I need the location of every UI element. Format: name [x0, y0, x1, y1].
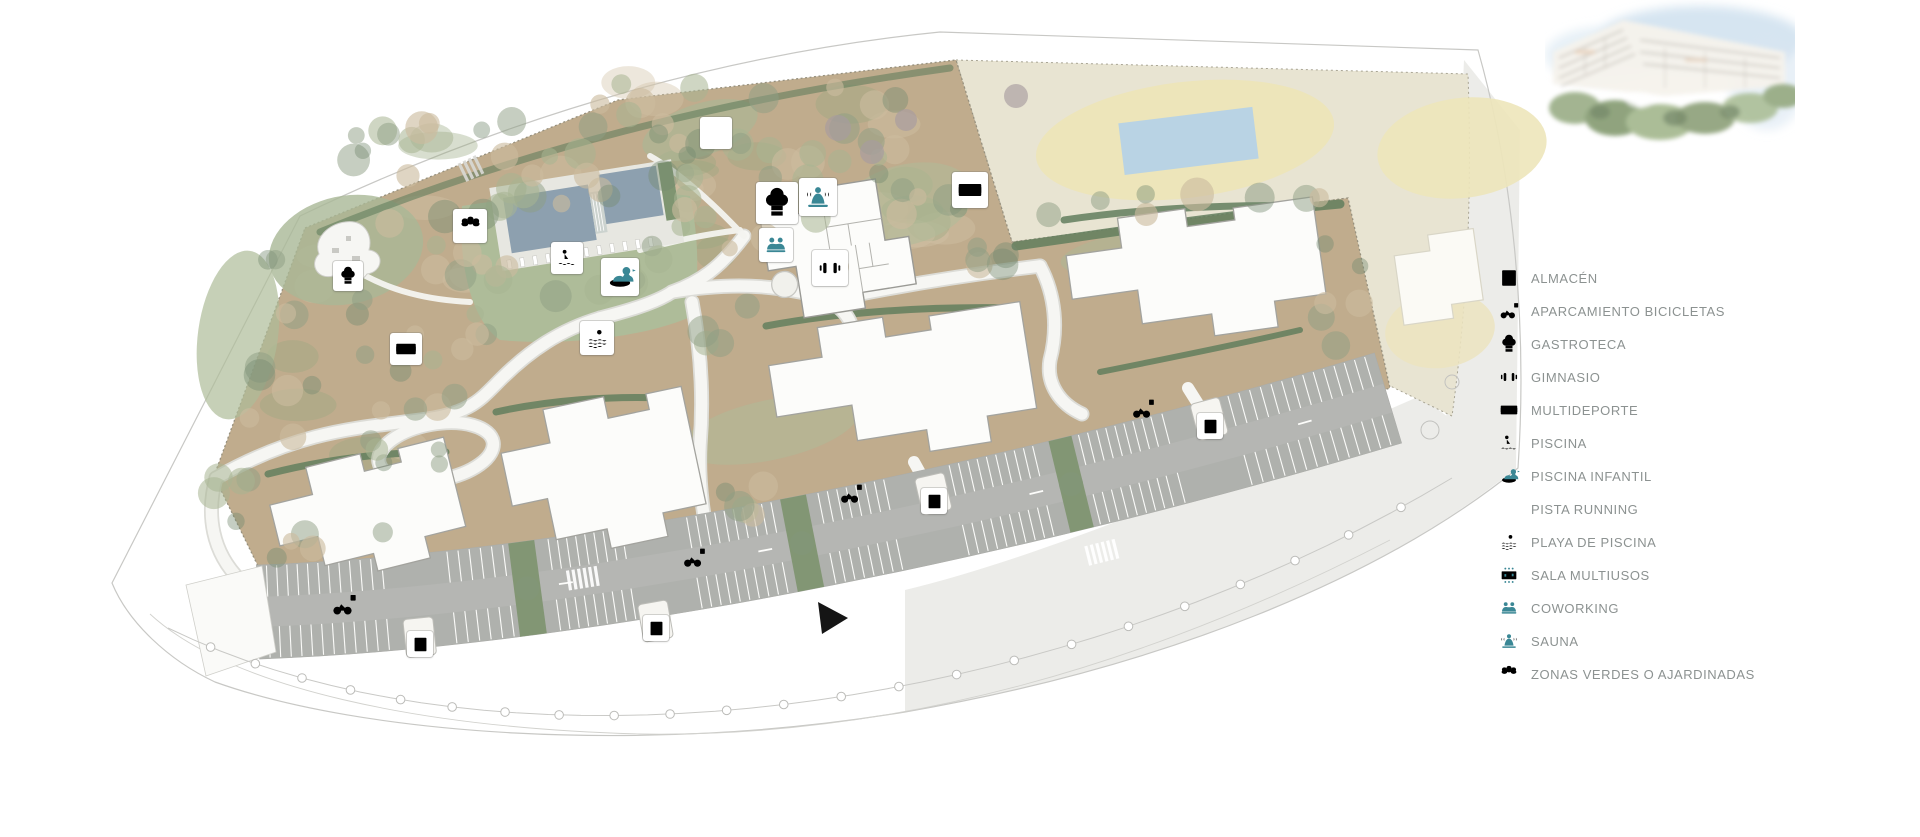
- sala-multiusos-icon: [1496, 563, 1522, 587]
- gimnasio-icon: [1496, 365, 1522, 389]
- legend-item-sauna: SAUNA: [1496, 629, 1755, 653]
- legend-label: COWORKING: [1531, 601, 1619, 616]
- sauna-icon: [1496, 629, 1522, 653]
- piscina-icon: [1496, 431, 1522, 455]
- pista-running-icon: [1496, 497, 1522, 521]
- bicicletas-map-icon: [837, 480, 865, 508]
- legend-label: PLAYA DE PISCINA: [1531, 535, 1656, 550]
- multideporte-map-icon: [952, 172, 988, 208]
- legend-item-coworking: COWORKING: [1496, 596, 1755, 620]
- legend-label: PISCINA: [1531, 436, 1587, 451]
- legend-label: ALMACÉN: [1531, 271, 1598, 286]
- legend-item-multideporte: MULTIDEPORTE: [1496, 398, 1755, 422]
- almacen-map-icon: [643, 615, 669, 641]
- almacen-map-icon: [921, 488, 947, 514]
- legend-item-gastroteca: GASTROTECA: [1496, 332, 1755, 356]
- almacen-icon: [1496, 266, 1522, 290]
- bicicletas-map-icon: [329, 590, 359, 620]
- piscina-map-icon: [551, 242, 583, 274]
- almacen-map-icon: [407, 631, 433, 657]
- legend-item-bicicletas: APARCAMIENTO BICICLETAS: [1496, 299, 1755, 323]
- gastroteca-map-icon: [333, 261, 363, 291]
- coworking-map-icon: [759, 228, 793, 262]
- legend-item-playa-piscina: PLAYA DE PISCINA: [1496, 530, 1755, 554]
- legend-label: APARCAMIENTO BICICLETAS: [1531, 304, 1725, 319]
- bicicletas-icon: [1496, 299, 1522, 323]
- legend-label: ZONAS VERDES O AJARDINADAS: [1531, 667, 1755, 682]
- legend-label: PISTA RUNNING: [1531, 502, 1638, 517]
- almacen-map-icon: [1197, 413, 1223, 439]
- legend-label: GIMNASIO: [1531, 370, 1600, 385]
- zonas-verdes-map-icon: [453, 209, 487, 243]
- cursor-pointer[interactable]: [818, 602, 848, 634]
- legend-item-piscina-infantil: PISCINA INFANTIL: [1496, 464, 1755, 488]
- legend: ALMACÉNAPARCAMIENTO BICICLETASGASTROTECA…: [1496, 266, 1755, 695]
- legend-label: SALA MULTIUSOS: [1531, 568, 1650, 583]
- coworking-icon: [1496, 596, 1522, 620]
- zonas-verdes-icon: [1496, 662, 1522, 686]
- gastroteca-map-icon: [756, 182, 798, 224]
- legend-label: GASTROTECA: [1531, 337, 1626, 352]
- bicicletas-map-icon: [680, 544, 708, 572]
- gimnasio-map-icon: [812, 250, 848, 286]
- watercolor-building-rendering: [1545, 0, 1795, 150]
- legend-item-zonas-verdes: ZONAS VERDES O AJARDINADAS: [1496, 662, 1755, 686]
- bicicletas-map-icon: [1129, 395, 1157, 423]
- masterplan-screenshot: ALMACÉNAPARCAMIENTO BICICLETASGASTROTECA…: [0, 0, 1920, 837]
- sauna-map-icon: [799, 178, 837, 216]
- multideporte-map-icon: [390, 333, 422, 365]
- legend-label: SAUNA: [1531, 634, 1579, 649]
- playa-piscina-icon: [1496, 530, 1522, 554]
- legend-item-piscina: PISCINA: [1496, 431, 1755, 455]
- piscina-infantil-map-icon: [601, 258, 639, 296]
- legend-item-almacen: ALMACÉN: [1496, 266, 1755, 290]
- legend-label: MULTIDEPORTE: [1531, 403, 1638, 418]
- piscina-infantil-icon: [1496, 464, 1522, 488]
- legend-item-gimnasio: GIMNASIO: [1496, 365, 1755, 389]
- legend-label: PISCINA INFANTIL: [1531, 469, 1652, 484]
- gastroteca-icon: [1496, 332, 1522, 356]
- playa-piscina-map-icon: [580, 321, 614, 355]
- pista-running-map-icon: [700, 117, 732, 149]
- legend-item-pista-running: PISTA RUNNING: [1496, 497, 1755, 521]
- multideporte-icon: [1496, 398, 1522, 422]
- legend-item-sala-multiusos: SALA MULTIUSOS: [1496, 563, 1755, 587]
